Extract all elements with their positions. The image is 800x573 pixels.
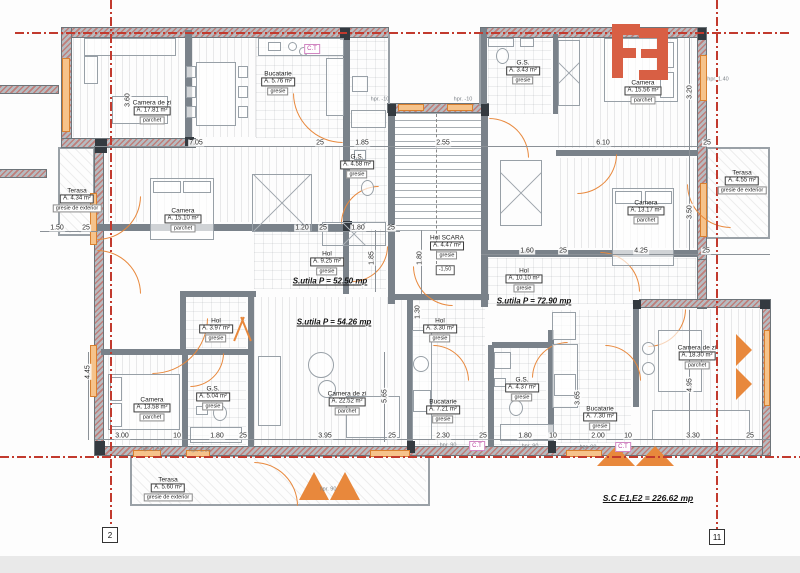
room-name: Hol	[505, 267, 542, 274]
floor-plan-canvas: F3 Camera de ziA. 17.81 m²parchetBucatar…	[0, 0, 800, 573]
furniture-round	[288, 42, 297, 51]
room-name: Camera de zi	[133, 99, 172, 106]
furniture-round	[642, 362, 655, 375]
room-label-camera-ne-2: CameraA. 13.17 m²parchet	[627, 199, 664, 224]
room-floor-finish: gresie	[512, 393, 533, 401]
room-area: A. 15.56 m²	[624, 87, 661, 96]
f3-logo: F3	[612, 22, 674, 82]
room-area: A. 4.55 m²	[725, 177, 759, 186]
room-name: Hol	[199, 317, 233, 324]
room-floor-finish: parchet	[631, 96, 655, 104]
dimension-text: 25	[478, 433, 488, 440]
room-floor-finish: gresie de exterior	[53, 204, 102, 212]
furniture	[186, 106, 196, 118]
dimension-text-vertical: 3.50	[687, 204, 694, 220]
furniture	[351, 110, 386, 128]
dimension-text: 1.80	[209, 433, 225, 440]
wall-interior	[633, 307, 639, 407]
room-label-terasa-nv: TerasaA. 4.34 m²gresie de exterior	[53, 187, 102, 212]
dimension-text: 25	[745, 433, 755, 440]
dimension-text: 4.25	[633, 248, 649, 255]
annotation-parapet-height: hpr. 90	[440, 443, 457, 449]
annotation-parapet-height: hpr. 1.55	[141, 447, 162, 453]
room-area: A. 7.21 m²	[426, 406, 460, 415]
ct-boiler-label: C.T	[615, 442, 631, 452]
annotation-parapet-height: hpr. -10	[371, 97, 390, 103]
room-floor-finish: gresie	[514, 284, 535, 292]
furniture	[196, 62, 236, 126]
room-area: A. 3.43 m²	[506, 67, 540, 76]
room-label-gs-nv: G.S.A. 4.58 m²gresie	[340, 153, 374, 178]
room-label-camera-de-zi-nv: Camera de ziA. 17.81 m²parchet	[133, 99, 172, 124]
column	[633, 300, 641, 309]
furniture	[84, 56, 98, 84]
column	[698, 28, 706, 40]
axis-line-h-bottom	[0, 456, 800, 458]
room-area: A. 7.30 m²	[583, 413, 617, 422]
furniture-round	[509, 400, 523, 416]
wall-interior	[388, 112, 395, 304]
dimension-text: 2.00	[590, 433, 606, 440]
window	[764, 330, 770, 406]
dimension-text-vertical: 1.85	[369, 250, 376, 266]
dimension-text: 1.60	[519, 248, 535, 255]
dimension-text: 1.80	[517, 433, 533, 440]
logo-text: F3	[612, 22, 613, 23]
room-label-hol-se: HolA. 3.30 m²gresie	[423, 317, 457, 342]
furniture	[268, 42, 281, 51]
door-swing	[97, 250, 141, 294]
building-edge	[479, 32, 481, 106]
room-label-bucatarie-se: BucatarieA. 7.30 m²gresie	[583, 405, 617, 430]
furniture	[153, 181, 181, 193]
room-name: Hol SCARA	[430, 234, 464, 241]
room-floor-finish: parchet	[140, 413, 164, 421]
furniture	[652, 410, 750, 440]
axis-line-2	[110, 0, 112, 527]
room-floor-finish: gresie	[206, 334, 227, 342]
logo-bar	[623, 24, 640, 35]
column	[481, 104, 489, 116]
column	[548, 441, 556, 453]
furniture	[494, 352, 511, 369]
window	[398, 104, 424, 111]
dimension-text: 1.80	[350, 225, 366, 232]
room-floor-finish: parchet	[335, 407, 359, 415]
wall-interior	[182, 355, 188, 447]
window-triangle	[736, 368, 752, 400]
logo-bar	[623, 48, 636, 58]
logo-bar	[639, 70, 658, 80]
room-name: Terasa	[144, 476, 193, 483]
dimension-text: 25	[701, 248, 711, 255]
door-swing	[489, 118, 529, 158]
dimension-text-vertical: 3.65	[575, 390, 582, 406]
wall-interior	[492, 342, 554, 348]
furniture	[352, 76, 368, 92]
room-floor-finish: parchet	[685, 361, 709, 369]
wall-exterior	[0, 86, 58, 93]
room-area: A. 13.58 m²	[133, 404, 170, 413]
room-floor-finish: gresie	[590, 422, 611, 430]
wardrobe	[500, 160, 542, 226]
room-area: A. 5.60 m²	[151, 484, 185, 493]
room-name: Bucatarie	[583, 405, 617, 412]
room-name: Camera	[164, 207, 201, 214]
dimension-text: 25	[558, 248, 568, 255]
room-area: A. 4.47 m²	[430, 242, 464, 251]
room-area: A. 3.30 m²	[423, 325, 457, 334]
room-label-hol-nv: HolA. 9.25 m²gresie	[310, 250, 344, 275]
room-name: Hol	[423, 317, 457, 324]
dimension-text-vertical: 4.95	[687, 377, 694, 393]
room-label-bucatarie-nv: BucatarieA. 5.76 m²gresie	[261, 70, 295, 95]
annotation-parapet-height: hpr. 1.40	[707, 77, 728, 83]
dimension-text-vertical: 5.65	[382, 388, 389, 404]
room-floor-finish: gresie	[437, 251, 458, 259]
room-name: Terasa	[53, 187, 102, 194]
summary-sutila-nv: S.utila P = 52.50 mp	[293, 277, 368, 286]
column	[95, 441, 105, 455]
dimension-text: 10	[623, 433, 633, 440]
wall-interior	[248, 291, 254, 447]
dimension-text: 25	[81, 225, 91, 232]
room-name: Camera de zi	[678, 344, 717, 351]
dimension-text-vertical: 1.80	[417, 250, 424, 266]
dimension-line	[689, 310, 690, 440]
dimension-text: 1.50	[49, 225, 65, 232]
room-floor-finish: gresie	[430, 334, 451, 342]
dimension-text: 3.95	[317, 433, 333, 440]
staircase	[393, 114, 481, 230]
dimension-text: 1.85	[354, 140, 370, 147]
room-label-gs-ne: G.S.A. 3.43 m²gresie	[506, 59, 540, 84]
column	[388, 104, 396, 116]
furniture-round	[413, 356, 429, 372]
dimension-text: 7.05	[188, 140, 204, 147]
room-area: A. 17.81 m²	[133, 107, 170, 116]
room-area: A. 22.52 m²	[328, 398, 365, 407]
furniture	[520, 38, 534, 47]
level-marker: -1,50	[436, 265, 455, 275]
room-floor-finish: gresie	[268, 87, 289, 95]
axis-bubble-2: 2	[102, 527, 118, 543]
annotation-parapet-height: hpr. 1.35	[189, 448, 210, 454]
furniture	[186, 86, 196, 98]
dimension-text: 25	[386, 225, 396, 232]
annotation-parapet-height: hpr. 90	[580, 445, 597, 451]
room-area: A. 15.10 m²	[164, 215, 201, 224]
wall-interior	[180, 291, 256, 297]
room-label-hol-sv: HolA. 3.97 m²gresie	[199, 317, 233, 342]
room-floor-finish: gresie de exterior	[718, 186, 767, 194]
dimension-text-vertical: 3.20	[687, 84, 694, 100]
room-area: A. 4.34 m²	[60, 195, 94, 204]
furniture-round	[642, 342, 655, 355]
dimension-text: 1.20	[294, 225, 310, 232]
furniture-round	[308, 352, 334, 378]
furniture	[238, 106, 248, 118]
room-label-hol-scara: Hol SCARAA. 4.47 m²gresie	[430, 234, 464, 259]
axis-bubble-11: 11	[709, 529, 725, 545]
room-name: G.S.	[340, 153, 374, 160]
logo-bar	[657, 28, 668, 80]
dimension-text: 3.00	[114, 433, 130, 440]
dimension-text: 6.10	[595, 140, 611, 147]
furniture	[552, 312, 576, 340]
furniture	[186, 66, 196, 78]
ct-boiler-label: C.T	[304, 44, 320, 54]
dimension-text: 2.30	[435, 433, 451, 440]
furniture	[554, 374, 576, 396]
wardrobe	[252, 174, 312, 232]
wall-exterior	[640, 300, 770, 307]
room-area: A. 4.58 m²	[340, 161, 374, 170]
room-area: A. 4.37 m²	[505, 384, 539, 393]
room-area: A. 3.97 m²	[199, 325, 233, 334]
window	[447, 104, 473, 111]
furniture	[326, 58, 344, 116]
dimension-text-vertical: 1.30	[415, 304, 422, 320]
room-floor-finish: gresie	[203, 402, 224, 410]
wall-exterior	[0, 170, 46, 177]
room-name: Camera de zi	[328, 390, 367, 397]
room-label-camera-de-zi-se: Camera de ziA. 18.30 m²parchet	[678, 344, 717, 369]
room-floor-finish: gresie	[317, 267, 338, 275]
dimension-text: 25	[318, 225, 328, 232]
room-area: A. 13.17 m²	[627, 207, 664, 216]
dimension-line	[95, 439, 770, 440]
ct-boiler-label: C.T	[469, 441, 485, 451]
room-label-terasa-s: TerasaA. 5.60 m²gresie de exterior	[144, 476, 193, 501]
dimension-text: 10	[548, 433, 558, 440]
furniture-round	[361, 180, 374, 196]
room-area: A. 10.10 m²	[505, 275, 542, 284]
dimension-text: 3.30	[685, 433, 701, 440]
room-area: A. 5.04 m²	[196, 393, 230, 402]
summary-sutila-ne: S.utila P = 72.90 mp	[497, 297, 572, 306]
furniture	[258, 356, 281, 426]
room-floor-finish: parchet	[140, 116, 164, 124]
window-triangle	[736, 334, 752, 366]
window	[62, 58, 70, 132]
room-label-hol-ne: HolA. 10.10 m²gresie	[505, 267, 542, 292]
room-name: Camera	[627, 199, 664, 206]
dimension-line	[95, 146, 707, 147]
room-floor-finish: parchet	[634, 216, 658, 224]
room-name: Bucatarie	[261, 70, 295, 77]
annotation-parapet-height: hpr. 90	[320, 487, 337, 493]
dimension-text: 25	[238, 433, 248, 440]
room-floor-finish: gresie de exterior	[144, 493, 193, 501]
dimension-text-vertical: 4.45	[85, 364, 92, 380]
wall-interior	[481, 28, 487, 116]
room-area: A. 5.76 m²	[261, 78, 295, 87]
summary-sutila-s: S.utila P = 54.26 mp	[297, 318, 372, 327]
room-name: Camera	[133, 396, 170, 403]
room-area: A. 18.30 m²	[678, 352, 715, 361]
furniture	[183, 181, 211, 193]
dimension-text: 25	[315, 140, 325, 147]
room-floor-finish: gresie	[347, 170, 368, 178]
room-label-camera-ne-1: CameraA. 15.56 m²parchet	[624, 79, 661, 104]
room-label-gs-sv: G.S.A. 5.04 m²gresie	[196, 385, 230, 410]
room-name: G.S.	[505, 376, 539, 383]
dimension-text: 25	[702, 140, 712, 147]
window	[700, 55, 707, 101]
furniture	[84, 38, 176, 56]
room-label-terasa-ne: TerasaA. 4.55 m²gresie de exterior	[718, 169, 767, 194]
room-name: Terasa	[718, 169, 767, 176]
dimension-text: 2.55	[435, 140, 451, 147]
furniture	[488, 38, 514, 47]
furniture	[238, 66, 248, 78]
room-floor-finish: parchet	[171, 224, 195, 232]
building-edge	[388, 32, 390, 106]
dimension-text: 25	[387, 433, 397, 440]
room-label-camera-sv: CameraA. 13.58 m²parchet	[133, 396, 170, 421]
wall-interior	[481, 116, 488, 307]
room-floor-finish: gresie	[433, 415, 454, 423]
room-label-gs-se: G.S.A. 4.37 m²gresie	[505, 376, 539, 401]
room-name: Hol	[310, 250, 344, 257]
dimension-text: 10	[172, 433, 182, 440]
room-label-camera-de-zi-s: Camera de ziA. 22.52 m²parchet	[328, 390, 367, 415]
bottom-margin-strip	[0, 556, 800, 573]
room-floor-finish: gresie	[513, 76, 534, 84]
logo-bar	[639, 28, 658, 38]
summary-total: S.C E1,E2 = 226.62 mp	[603, 493, 693, 503]
room-name: Bucatarie	[426, 398, 460, 405]
wardrobe	[558, 40, 580, 106]
column	[760, 300, 770, 309]
door-swing	[97, 196, 141, 240]
room-name: G.S.	[506, 59, 540, 66]
annotation-parapet-height: hpr. 90	[522, 444, 539, 450]
furniture	[238, 86, 248, 98]
room-label-camera-nv: CameraA. 15.10 m²parchet	[164, 207, 201, 232]
logo-bar	[641, 49, 658, 58]
room-name: G.S.	[196, 385, 230, 392]
logo-bar	[612, 24, 623, 78]
dimension-text-vertical: 3.60	[125, 92, 132, 108]
room-area: A. 9.25 m²	[310, 258, 344, 267]
room-label-bucatarie-s: BucatarieA. 7.21 m²gresie	[426, 398, 460, 423]
annotation-parapet-height: hpr. -10	[454, 97, 473, 103]
